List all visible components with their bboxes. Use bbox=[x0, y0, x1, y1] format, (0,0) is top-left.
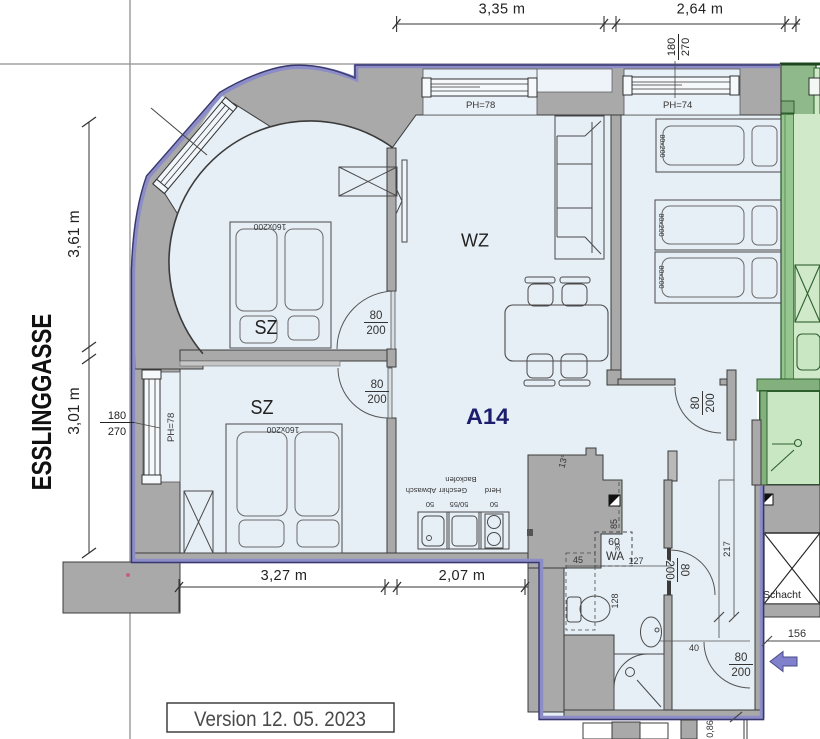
svg-text:Geschirr: Geschirr bbox=[438, 486, 467, 495]
svg-text:270: 270 bbox=[108, 426, 126, 438]
svg-text:200: 200 bbox=[663, 560, 675, 579]
svg-text:40: 40 bbox=[689, 643, 699, 653]
svg-text:160x200: 160x200 bbox=[253, 222, 286, 232]
svg-text:200: 200 bbox=[366, 325, 385, 337]
svg-text:Abwasch: Abwasch bbox=[406, 486, 436, 495]
svg-text:50: 50 bbox=[426, 500, 434, 509]
svg-text:200: 200 bbox=[367, 394, 386, 406]
svg-text:3,01 m: 3,01 m bbox=[66, 387, 83, 434]
svg-text:PH=78: PH=78 bbox=[466, 100, 495, 111]
svg-text:0,86: 0,86 bbox=[705, 720, 715, 738]
svg-text:80: 80 bbox=[370, 310, 383, 322]
svg-text:180: 180 bbox=[666, 38, 678, 56]
svg-text:200: 200 bbox=[731, 667, 750, 679]
svg-text:85: 85 bbox=[609, 519, 619, 529]
svg-text:80x200: 80x200 bbox=[657, 266, 664, 289]
svg-text:45: 45 bbox=[573, 555, 583, 565]
svg-text:80x200: 80x200 bbox=[657, 214, 664, 237]
svg-text:WA: WA bbox=[606, 551, 624, 563]
svg-text:Backofen: Backofen bbox=[445, 475, 476, 484]
svg-text:3,27 m: 3,27 m bbox=[261, 568, 308, 584]
svg-text:ESSLINGGASSE: ESSLINGGASSE bbox=[27, 314, 58, 491]
svg-text:200: 200 bbox=[705, 393, 717, 412]
svg-text:80: 80 bbox=[371, 379, 384, 391]
svg-text:180: 180 bbox=[108, 410, 126, 422]
svg-text:2,07 m: 2,07 m bbox=[439, 568, 486, 584]
svg-text:Schacht: Schacht bbox=[763, 589, 801, 601]
svg-text:128: 128 bbox=[610, 593, 620, 608]
svg-text:SZ: SZ bbox=[255, 317, 278, 339]
svg-text:50/55: 50/55 bbox=[450, 500, 469, 509]
svg-text:80: 80 bbox=[735, 652, 748, 664]
svg-text:3,35 m: 3,35 m bbox=[479, 2, 526, 18]
svg-text:80: 80 bbox=[678, 564, 690, 577]
svg-text:160x200: 160x200 bbox=[266, 425, 299, 435]
svg-text:217: 217 bbox=[722, 541, 733, 557]
svg-text:Herd: Herd bbox=[485, 486, 501, 495]
svg-text:A14: A14 bbox=[466, 404, 510, 429]
svg-text:PH=74: PH=74 bbox=[663, 100, 692, 111]
svg-text:Version 12. 05. 2023: Version 12. 05. 2023 bbox=[194, 707, 366, 731]
svg-text:80x200: 80x200 bbox=[658, 135, 665, 158]
svg-text:156: 156 bbox=[788, 628, 806, 640]
svg-text:50: 50 bbox=[490, 500, 498, 509]
svg-text:270: 270 bbox=[680, 38, 692, 56]
svg-text:SZ: SZ bbox=[251, 397, 274, 419]
svg-text:127: 127 bbox=[628, 556, 643, 566]
svg-text:80: 80 bbox=[690, 397, 702, 410]
svg-text:30: 30 bbox=[615, 543, 622, 551]
svg-text:3,61 m: 3,61 m bbox=[66, 210, 83, 257]
svg-text:2,64 m: 2,64 m bbox=[677, 2, 724, 18]
svg-text:PH=78: PH=78 bbox=[166, 413, 177, 442]
svg-text:WZ: WZ bbox=[461, 231, 489, 251]
